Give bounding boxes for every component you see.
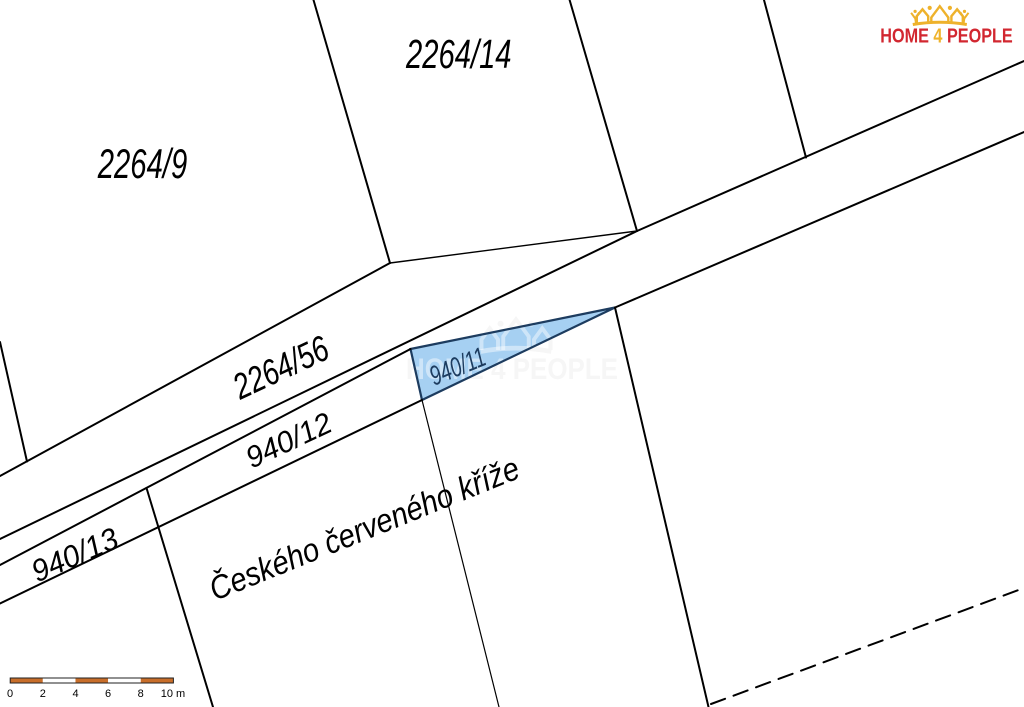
svg-text:10 m: 10 m <box>161 688 185 700</box>
svg-text:6: 6 <box>105 688 111 700</box>
svg-text:4: 4 <box>72 688 78 700</box>
svg-text:0: 0 <box>7 688 13 700</box>
svg-text:8: 8 <box>138 688 144 700</box>
svg-text:2: 2 <box>40 688 46 700</box>
svg-text:2264/14: 2264/14 <box>405 31 511 77</box>
svg-text:2264/9: 2264/9 <box>97 140 187 187</box>
svg-text:HOME 4 PEOPLE: HOME 4 PEOPLE <box>880 26 1013 48</box>
